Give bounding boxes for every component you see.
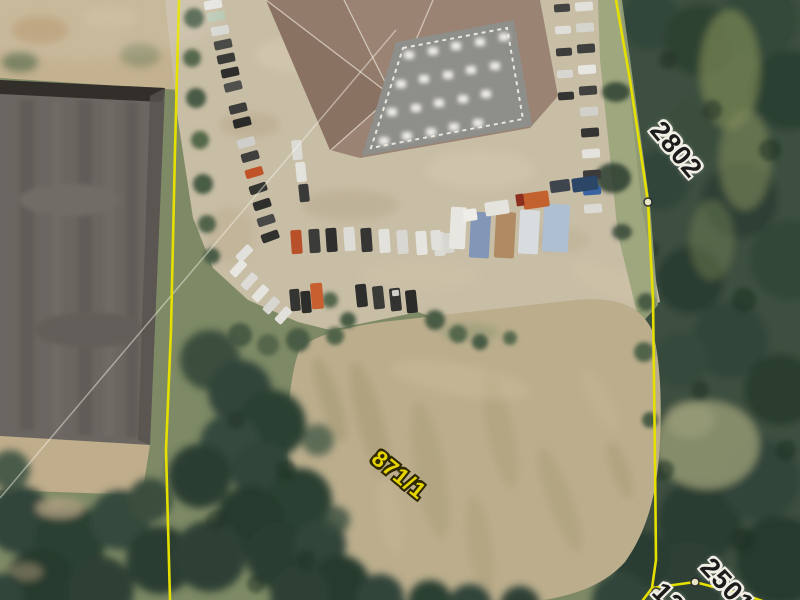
aerial-cadastral-map: 2802 871/1 2501 12 [0, 0, 800, 600]
dark-field-west [0, 80, 165, 445]
parking-row-middle [290, 227, 446, 257]
satellite-imagery [0, 0, 800, 600]
